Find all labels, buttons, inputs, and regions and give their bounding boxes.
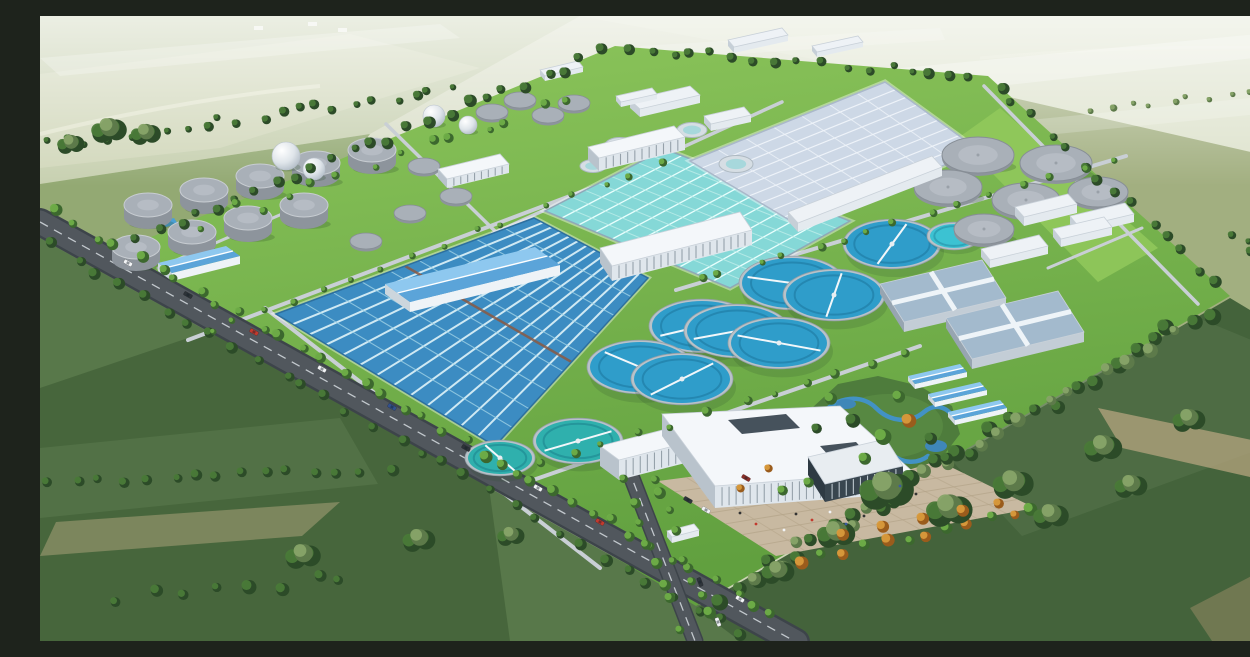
small-tank (504, 92, 536, 111)
scene-svg (40, 16, 1250, 641)
small-tank (532, 107, 564, 126)
clarifier-tank (843, 219, 944, 277)
small-tank (408, 158, 440, 177)
clarifier-tank (728, 317, 833, 377)
digester-tank (124, 193, 175, 229)
small-tank (440, 188, 472, 207)
gas-holder-sphere (272, 142, 301, 171)
clarifier-tank (631, 353, 736, 413)
covered-tank (954, 214, 1017, 247)
small-tank (394, 205, 426, 224)
small-tank (350, 233, 382, 252)
aerial-site-rendering (40, 16, 1250, 641)
